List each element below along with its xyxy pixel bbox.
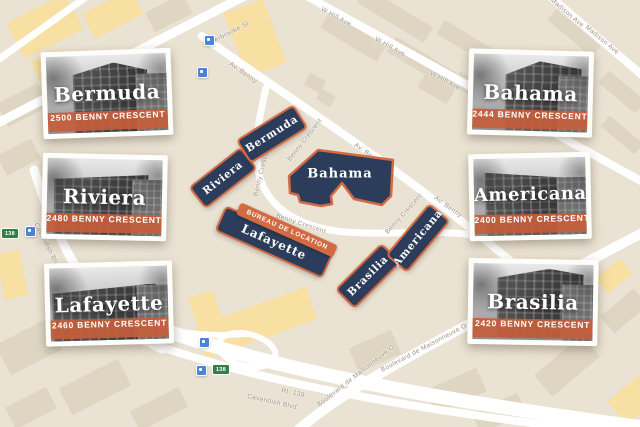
transit-icon (199, 337, 210, 348)
building-photo: Lafayette 2460 BENNY CRESCENT (49, 265, 169, 341)
card-bermuda[interactable]: Bermuda 2500 BENNY CRESCENT (41, 48, 174, 139)
card-title: Bahama (473, 79, 589, 106)
route-138-shield-icon: 138 (1, 228, 19, 239)
building-photo: Riviera 2480 BENNY CRESCENT (46, 158, 163, 236)
card-americana[interactable]: Americana 2400 BENNY CRESCENT (468, 152, 592, 242)
card-bahama[interactable]: Bahama 2444 BENNY CRESCENT (467, 48, 594, 137)
building-photo: Americana 2400 BENNY CRESCENT (473, 157, 587, 236)
transit-icon (196, 365, 207, 376)
card-title: Brasilia (473, 289, 593, 315)
card-lafayette[interactable]: Lafayette 2460 BENNY CRESCENT (44, 260, 174, 346)
route-138-shield-icon: 138 (212, 364, 230, 375)
card-address: 2400 BENNY CRESCENT (474, 213, 586, 234)
card-address: 2420 BENNY CRESCENT (472, 318, 592, 339)
card-riviera[interactable]: Riviera 2480 BENNY CRESCENT (41, 153, 168, 242)
card-title: Lafayette (50, 290, 169, 317)
card-address: 2444 BENNY CRESCENT (472, 108, 587, 130)
card-title: Riviera (47, 184, 162, 210)
card-address: 2460 BENNY CRESCENT (50, 317, 168, 339)
card-brasilia[interactable]: Brasilia 2420 BENNY CRESCENT (467, 258, 598, 346)
card-address: 2480 BENNY CRESCENT (46, 213, 161, 234)
building-photo: Brasilia 2420 BENNY CRESCENT (472, 263, 593, 341)
transit-icon (25, 226, 36, 237)
building-photo: Bahama 2444 BENNY CRESCENT (472, 54, 589, 133)
transit-icon (197, 67, 208, 78)
transit-icon (204, 35, 215, 46)
card-title: Bermuda (47, 79, 168, 107)
card-title: Americana (474, 183, 586, 206)
map-building-label: Bahama (307, 167, 372, 182)
card-address: 2500 BENNY CRESCENT (48, 109, 169, 132)
building-photo: Bermuda 2500 BENNY CRESCENT (46, 53, 169, 134)
site-map: Riviera Bermuda Bahama Lafayette Brasili… (0, 0, 640, 427)
